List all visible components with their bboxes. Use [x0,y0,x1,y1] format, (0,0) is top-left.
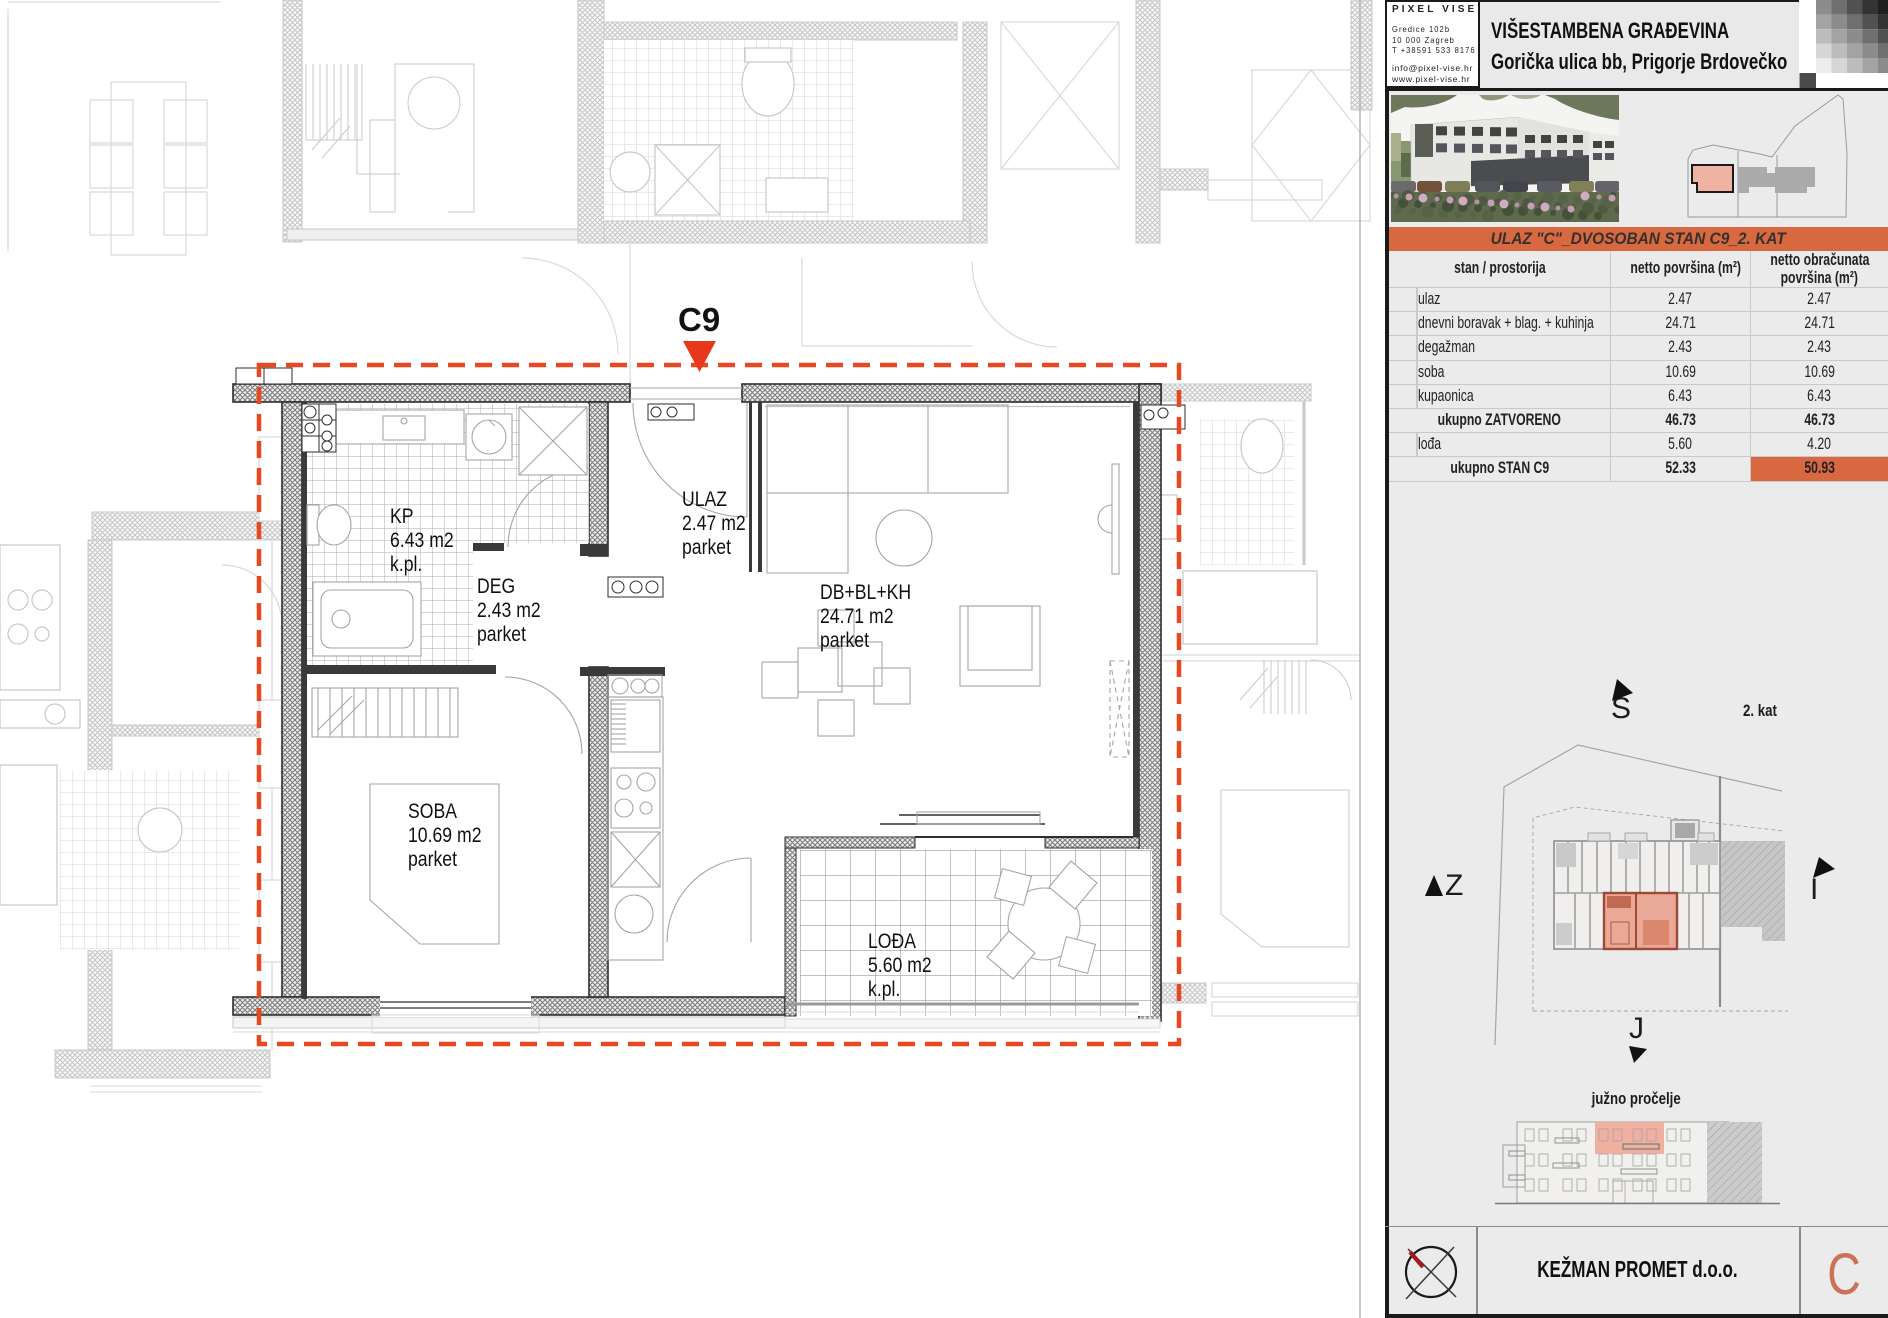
svg-text:2.47 m2: 2.47 m2 [682,511,746,535]
svg-text:2.43 m2: 2.43 m2 [477,598,541,622]
svg-text:SOBA: SOBA [408,799,458,823]
svg-text:10.69 m2: 10.69 m2 [408,823,482,847]
svg-text:5.60 m2: 5.60 m2 [868,953,932,977]
svg-text:KP: KP [390,504,414,528]
svg-text:parket: parket [820,628,869,652]
svg-text:DB+BL+KH: DB+BL+KH [820,580,911,604]
svg-text:24.71 m2: 24.71 m2 [820,604,894,628]
svg-text:DEG: DEG [477,574,515,598]
svg-text:ULAZ: ULAZ [682,487,727,511]
svg-text:parket: parket [682,535,731,559]
svg-text:k.pl.: k.pl. [868,977,900,1001]
svg-text:parket: parket [477,622,526,646]
svg-text:parket: parket [408,847,457,871]
svg-text:LOĐA: LOĐA [868,929,917,953]
svg-text:6.43 m2: 6.43 m2 [390,528,454,552]
svg-text:C9: C9 [678,301,720,338]
svg-text:k.pl.: k.pl. [390,552,422,576]
